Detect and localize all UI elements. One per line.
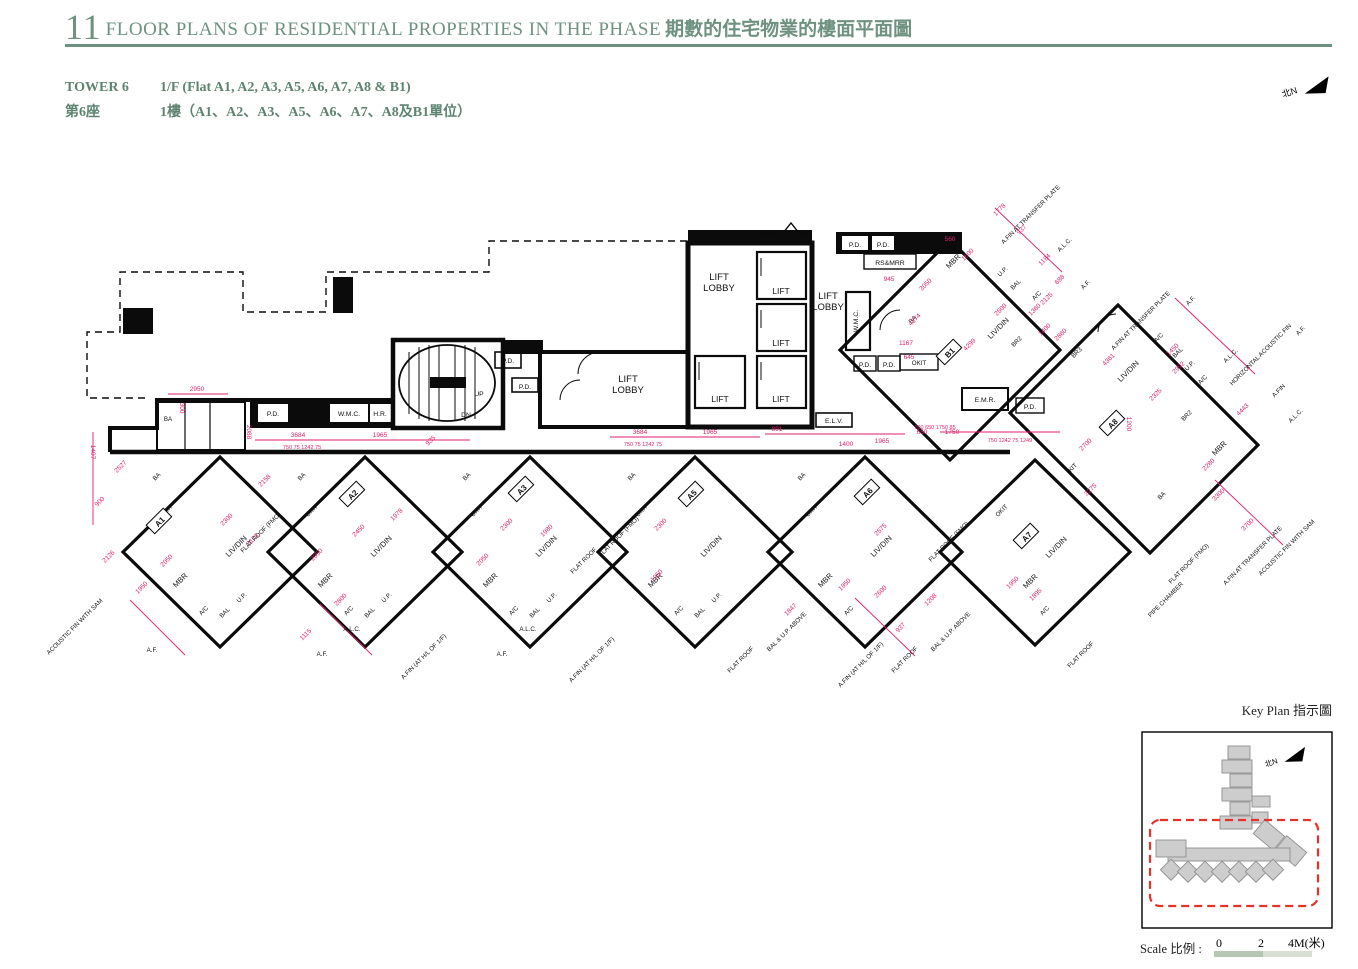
dim-label: 4274 xyxy=(907,312,922,327)
annotation: FLAT ROOF (FMO) xyxy=(927,520,970,563)
service-label: P.D. xyxy=(519,384,531,391)
annotation: FLAT ROOF xyxy=(890,645,919,674)
stair-dn-label: DN xyxy=(461,412,471,419)
dim-label: 3684 xyxy=(633,429,648,436)
annotation: A.L.C. xyxy=(1056,236,1073,253)
room-label: A/C xyxy=(673,604,686,617)
dim-label: 1978 xyxy=(389,507,404,522)
dim-label: 3050 xyxy=(918,277,933,292)
dim-label: 937 xyxy=(895,621,908,634)
service-label: P.D. xyxy=(859,362,871,369)
dim-label: 2158 xyxy=(257,473,272,488)
dim-label: 1400 xyxy=(839,441,854,448)
annotation: A.F. xyxy=(1295,325,1308,338)
room-label: BA xyxy=(297,471,308,482)
room-label: LIV/DIN xyxy=(986,316,1011,341)
room-label: BA xyxy=(797,471,808,482)
scale-tick: 0 xyxy=(1216,936,1222,950)
annotation: FLAT ROOF xyxy=(1066,640,1095,669)
lift-label: LIFT xyxy=(772,286,789,296)
annotation: FLAT ROOF (FMO) xyxy=(597,515,640,558)
flat-id-badge: A2 xyxy=(339,481,364,506)
scale-bar: 0 2 4M(米) xyxy=(1214,936,1325,957)
room-label: BAL xyxy=(218,606,232,620)
canopy-outline xyxy=(87,229,737,398)
scale-label: Scale 比例 : xyxy=(1140,938,1202,957)
dim-label: 3700 xyxy=(1240,517,1255,532)
service-label: H.R. xyxy=(373,411,387,418)
lift-label: LIFT xyxy=(772,338,789,348)
dim-label: 2300 xyxy=(499,517,514,532)
dim-label: 2860 xyxy=(1053,327,1068,342)
dim-label: 750 1242 75 1249 xyxy=(988,438,1032,444)
annotation: PIPE CHAMBER xyxy=(1147,581,1185,619)
annotation: A.L.C. xyxy=(1287,407,1304,424)
flat-A1 xyxy=(123,457,317,647)
door-arc xyxy=(560,380,580,400)
annotation: A.F. xyxy=(147,647,158,654)
door-arc xyxy=(578,352,600,374)
scale-segment-dark xyxy=(1214,951,1263,957)
annotation: A.F. xyxy=(497,651,508,658)
dim-label: 1895 xyxy=(1028,587,1043,602)
room-label: U.P. xyxy=(996,265,1009,278)
room-label: A/C xyxy=(198,604,211,617)
dim-label: 300 xyxy=(178,403,185,414)
dim-label: 4361 xyxy=(1101,352,1116,367)
dim-label: 1360 xyxy=(1027,302,1042,317)
dim-label: 1750 xyxy=(945,429,960,436)
annotation: FLAT ROOF xyxy=(569,546,598,575)
lift-lobby-label: LIFT xyxy=(618,374,638,385)
service-label: P.D. xyxy=(849,242,861,249)
room-label: BAL xyxy=(363,606,377,620)
key-plan: 北N xyxy=(1142,732,1332,928)
dim-label: 4299 xyxy=(962,337,977,352)
dim-label: 945 xyxy=(884,276,895,283)
dim-label: 1200 xyxy=(1125,417,1132,432)
room-label: MBR xyxy=(944,252,963,271)
dim-label: 1950 xyxy=(837,577,852,592)
dim-label: 2500 xyxy=(993,302,1008,317)
annotation: A.FIN (AT H/L OF 1/F) xyxy=(568,636,616,684)
annotation: A.F. xyxy=(1185,295,1198,308)
room-label: LIV/DIN xyxy=(1044,535,1069,560)
dim-label: 2700 xyxy=(1078,437,1093,452)
lift-lobby-label: LOBBY xyxy=(812,302,844,313)
room-label: BR2 xyxy=(1010,335,1024,349)
column xyxy=(333,277,353,313)
dim-label: 2050 xyxy=(159,553,174,568)
annotation: A.FIN (AT H/L OF 1/F) xyxy=(837,641,885,689)
service-label: W.M.C. xyxy=(338,411,360,418)
room-label: U.P. xyxy=(710,591,723,604)
flat-A8 xyxy=(1010,305,1258,553)
dim-label: 1167 xyxy=(899,340,913,347)
dim-label: 2280 xyxy=(1201,457,1216,472)
service-label: E.M.R. xyxy=(975,397,996,404)
annotation: A.L.C. xyxy=(1222,347,1239,364)
room-label: LIV/DIN xyxy=(869,534,894,559)
scale-segment-light xyxy=(1263,951,1312,957)
room-label: A/C xyxy=(1197,373,1210,386)
dim-label: 1184 xyxy=(1038,252,1053,267)
annotation: A.FIN AT TRANSFER PLATE xyxy=(1000,184,1062,246)
lift-lobby-label: LOBBY xyxy=(612,385,644,396)
lift-label: LIFT xyxy=(711,394,728,404)
room-label: LIV/DIN xyxy=(1116,359,1141,384)
door-arc xyxy=(880,310,900,330)
room-label: BA xyxy=(462,471,473,482)
dim-label: 3684 xyxy=(291,432,306,439)
room-label: LIV/DIN xyxy=(369,534,394,559)
flat-A1-labels: BA OKIT A1 LIV/DIN MBR A/C BAL U.P. xyxy=(146,471,249,620)
room-label: OKIT xyxy=(994,503,1009,518)
flat-id-badge: A8 xyxy=(1099,410,1124,435)
room-label: MBR xyxy=(481,571,500,590)
service-label: P.D. xyxy=(883,362,895,369)
north-arrow-icon xyxy=(1302,76,1333,99)
service-label: P.D. xyxy=(877,242,889,249)
dim-label: 2450 xyxy=(351,523,366,538)
flat-id-badge: A7 xyxy=(1013,523,1038,548)
lift-lobby-label: LIFT xyxy=(818,291,838,302)
dim-label: 2325 xyxy=(1148,387,1163,402)
flat-id-badge: A3 xyxy=(508,476,533,501)
room-label: A/C xyxy=(343,604,356,617)
room-label: MBR xyxy=(1021,572,1040,591)
dim-label: 935 xyxy=(425,434,438,447)
annotation: FLAT ROOF xyxy=(726,645,755,674)
flat-id-badge: A6 xyxy=(854,479,879,504)
dim-label: 1965 xyxy=(373,432,388,439)
room-label: BA xyxy=(152,471,163,482)
dim-label: 2300 xyxy=(219,512,234,527)
flat-A8-labels: BR3 LIV/DIN A8 BR2 MBR BA BAL U.P. A/C A… xyxy=(1070,331,1229,501)
room-label: A/C xyxy=(1039,604,1052,617)
column xyxy=(123,308,153,334)
dim-label: 688 xyxy=(1054,273,1067,286)
dim-label: 750 75 1242 75 xyxy=(624,442,662,448)
service-label: P.D. xyxy=(267,411,279,418)
annotation: ACOUSTIC FIN WITH SAM xyxy=(1257,518,1316,577)
service-label: RS&MRR xyxy=(875,260,905,267)
annotation: A.FIN AT TRANSFER PLATE xyxy=(1110,290,1172,352)
room-label: A/C xyxy=(508,604,521,617)
room-label: A/C xyxy=(1153,331,1166,344)
room-label: U.P. xyxy=(545,591,558,604)
room-label: U.P. xyxy=(380,591,393,604)
room-label: MBR xyxy=(316,571,335,590)
dim-label: 2050 xyxy=(309,547,324,562)
room-label: U.P. xyxy=(235,591,248,604)
room-label: BR2 xyxy=(1180,409,1194,423)
service-label: P.D. xyxy=(1024,404,1036,411)
service-label: E.L.V. xyxy=(825,418,843,425)
dim-label: 1950 xyxy=(134,580,149,595)
service-label: P.D. xyxy=(502,358,514,365)
dim-label: 1778 xyxy=(992,202,1007,217)
annotation: FLAT ROOF (FMO) xyxy=(239,511,282,554)
dim-label: 650 xyxy=(917,429,928,436)
dim-label: 1115 xyxy=(299,627,314,642)
dim-label: 1208 xyxy=(923,592,938,607)
scale-tick: 2 xyxy=(1258,936,1264,950)
annotation: ACOUSTIC FIN WITH SAM xyxy=(45,597,104,656)
room-label: BAL xyxy=(1009,278,1023,292)
dim-label: 645 xyxy=(904,354,915,361)
annotation: HORIZONTAL ACOUSTIC FIN xyxy=(1229,323,1294,388)
annotation: FLAT ROOF (FMO) xyxy=(1167,542,1210,585)
dim-label: 2300 xyxy=(653,517,668,532)
dim-label: 750 75 1242 75 xyxy=(283,445,321,451)
scale-tick: 4M(米) xyxy=(1288,936,1325,950)
room-label: BAL xyxy=(528,606,542,620)
room-label: BA xyxy=(1157,490,1168,501)
annotation: A.F. xyxy=(1080,279,1093,292)
north-label: 北N xyxy=(1281,85,1299,99)
dim-label: 900 xyxy=(94,495,107,508)
dim-label: 1965 xyxy=(875,438,890,445)
dim-label: 2126 xyxy=(101,549,116,564)
lift-lobby-label: LOBBY xyxy=(703,283,735,294)
flat-A3-labels: BA OKIT A3 LIV/DIN MBR A/C BAL U.P. xyxy=(462,471,559,620)
annotation: A.L.C. xyxy=(343,626,360,633)
dim-label: 1407 xyxy=(89,445,96,460)
dim-label: 2050 xyxy=(475,552,490,567)
dim-label: 1950 xyxy=(1005,575,1020,590)
room-label: BA xyxy=(164,416,173,423)
north-arrow: 北N xyxy=(1281,75,1334,107)
room-label: MBR xyxy=(1210,439,1229,458)
dim-label: 891 xyxy=(772,426,783,433)
dim-label: 2800 xyxy=(333,592,348,607)
room-label: MBR xyxy=(171,571,190,590)
annotation: A.FIN (AT H/L OF 1/F) xyxy=(400,633,448,681)
lift-lobby-label: LIFT xyxy=(709,272,729,283)
flat-A5-labels: BA OKIT A5 LIV/DIN MBR A/C BAL U.P. xyxy=(627,471,724,620)
dim-label: 2088 xyxy=(245,425,252,440)
stair-up-label: UP xyxy=(474,391,484,398)
dim-label: 560 xyxy=(945,236,956,243)
dim-label: 2950 xyxy=(190,386,205,393)
lift-core xyxy=(688,243,812,427)
room-label: BR3 xyxy=(1070,346,1084,360)
flat-id-badge: A5 xyxy=(678,481,703,506)
brochure-page: 11 FLOOR PLANS OF RESIDENTIAL PROPERTIES… xyxy=(0,0,1358,969)
annotation: BAL & U.P. ABOVE xyxy=(930,611,972,653)
dim-label: 1847 xyxy=(783,602,798,617)
dim-label: 2600 xyxy=(873,584,888,599)
room-label: BA xyxy=(627,471,638,482)
room-label: A/C xyxy=(843,604,856,617)
room-label: MBR xyxy=(816,571,835,590)
room-label: KIT xyxy=(1067,462,1079,474)
room-label: BAL xyxy=(693,606,707,620)
lift-label: LIFT xyxy=(772,394,789,404)
annotation: A.FIN xyxy=(1271,383,1287,399)
flat-B1-labels: MBR BA B1 LIV/DIN BR2 U.P. BAL A/C xyxy=(908,252,1044,365)
key-plan-title: Key Plan 指示圖 xyxy=(1142,700,1332,719)
dim-label: 4443 xyxy=(1235,402,1250,417)
floor-plan-drawing: 北N xyxy=(0,0,1358,969)
dim-label: 1965 xyxy=(703,429,718,436)
annotation: A.F. xyxy=(317,651,328,658)
dim-label: 2527 xyxy=(113,459,128,474)
door-arc xyxy=(1098,314,1116,332)
annotation: A.L.C. xyxy=(519,626,536,633)
flat-id-badge: B1 xyxy=(936,339,961,364)
room-label: LIV/DIN xyxy=(699,534,724,559)
room-label: LIV/DIN xyxy=(534,534,559,559)
service-label: W.M.C. xyxy=(853,310,860,332)
room-label: OKIT xyxy=(912,360,927,367)
